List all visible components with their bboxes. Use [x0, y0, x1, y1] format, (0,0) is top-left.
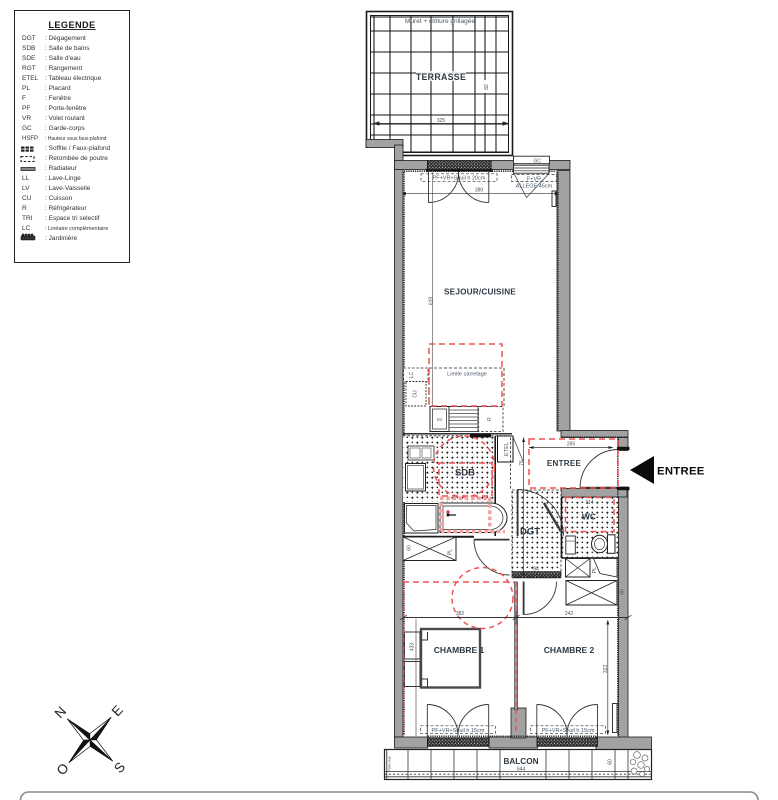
- svg-text:: Lave-Linge: : Lave-Linge: [45, 175, 81, 182]
- svg-text:SDB: SDB: [455, 468, 475, 479]
- svg-text:SDE: SDE: [22, 55, 36, 62]
- svg-text:ENTREE: ENTREE: [547, 459, 582, 468]
- svg-text:PL: PL: [592, 567, 598, 573]
- svg-text:DGT: DGT: [22, 35, 36, 42]
- svg-text:DGT: DGT: [520, 527, 540, 538]
- svg-text:Limite carrelage: Limite carrelage: [447, 372, 487, 378]
- svg-text:CU: CU: [22, 195, 32, 202]
- svg-text:: Fenêtre: : Fenêtre: [45, 95, 71, 102]
- svg-text:: Garde-corps: : Garde-corps: [45, 125, 85, 132]
- svg-text:: Jardinière: : Jardinière: [45, 235, 78, 242]
- svg-text:CHAMBRE 1: CHAMBRE 1: [434, 645, 485, 655]
- svg-text:S1: S1: [437, 417, 443, 422]
- svg-text:: Rangement: : Rangement: [45, 65, 82, 72]
- svg-text:HSFP: HSFP: [22, 136, 38, 142]
- svg-text:: Tableau électrique: : Tableau électrique: [45, 75, 102, 82]
- svg-text:: Dégagement: : Dégagement: [45, 35, 86, 42]
- svg-text:76: 76: [519, 460, 525, 466]
- svg-text:94: 94: [533, 566, 539, 572]
- svg-text:: Lave-Vaisselle: : Lave-Vaisselle: [45, 185, 91, 192]
- svg-text:: Placard: : Placard: [45, 85, 71, 92]
- svg-text:: Hauteur sous faux-plafond: : Hauteur sous faux-plafond: [45, 136, 107, 142]
- svg-text:Muret + clôture grillagée: Muret + clôture grillagée: [405, 18, 475, 25]
- svg-text:LEGENDE: LEGENDE: [48, 20, 95, 30]
- svg-text:82: 82: [484, 84, 490, 90]
- svg-text:TERRASSE: TERRASSE: [416, 72, 466, 82]
- svg-text:PL: PL: [448, 549, 454, 555]
- svg-text:: Linéaire complémentaire: : Linéaire complémentaire: [45, 226, 108, 232]
- svg-text:ALLEGE 45cm: ALLEGE 45cm: [516, 183, 553, 189]
- svg-text:PF+VR+Seuil h 15cm: PF+VR+Seuil h 15cm: [432, 728, 485, 734]
- svg-text:60: 60: [407, 545, 413, 551]
- svg-text:PF+VR+Seuil h 15cm: PF+VR+Seuil h 15cm: [542, 728, 595, 734]
- svg-text:WC: WC: [582, 512, 596, 522]
- svg-text:LC: LC: [22, 225, 31, 232]
- svg-text:CHAMBRE 2: CHAMBRE 2: [544, 645, 595, 655]
- svg-text:LV: LV: [22, 185, 30, 192]
- svg-text:LC: LC: [409, 371, 415, 378]
- svg-text:323: 323: [603, 665, 609, 674]
- svg-text:: Radiateur: : Radiateur: [45, 165, 78, 172]
- svg-text:CU: CU: [413, 390, 419, 398]
- svg-text:PF: PF: [22, 105, 30, 112]
- svg-text:: Volet roulant: : Volet roulant: [45, 115, 85, 122]
- svg-text:: Espace tri selectif: : Espace tri selectif: [45, 215, 100, 222]
- svg-text:: Soffite / Faux-plafond: : Soffite / Faux-plafond: [45, 145, 111, 152]
- svg-text:SEJOUR/CUISINE: SEJOUR/CUISINE: [444, 288, 516, 297]
- svg-text:R: R: [487, 417, 493, 421]
- svg-text:VR: VR: [22, 115, 31, 122]
- svg-text:ETEL: ETEL: [22, 75, 39, 82]
- svg-text:619: 619: [429, 297, 435, 306]
- svg-text:: Réfrigérateur: : Réfrigérateur: [45, 205, 87, 212]
- svg-text:644: 644: [517, 767, 526, 773]
- svg-text:LL: LL: [22, 175, 30, 182]
- svg-text:60: 60: [620, 589, 626, 595]
- svg-text:: Porte-fenêtre: : Porte-fenêtre: [45, 105, 87, 112]
- svg-text:: Salle d'eau: : Salle d'eau: [45, 55, 81, 62]
- svg-text:RGT: RGT: [22, 65, 36, 72]
- svg-text:: Cuisson: : Cuisson: [45, 195, 72, 202]
- svg-text:: Salle de bains: : Salle de bains: [45, 45, 90, 52]
- svg-text:GC: GC: [22, 125, 32, 132]
- svg-text:GC: GC: [534, 159, 542, 165]
- svg-text:60: 60: [608, 759, 614, 765]
- svg-text:ENTREE: ENTREE: [657, 466, 705, 478]
- svg-text:F+VR: F+VR: [527, 176, 541, 182]
- svg-text:380: 380: [475, 188, 484, 194]
- svg-text:PL: PL: [22, 85, 30, 92]
- svg-text:382: 382: [456, 611, 465, 617]
- svg-text:: Retombée de poutre: : Retombée de poutre: [45, 155, 108, 162]
- svg-text:114: 114: [586, 500, 594, 506]
- svg-text:ETEL: ETEL: [504, 442, 510, 456]
- svg-text:Pare-vue: Pare-vue: [388, 756, 392, 771]
- svg-text:F: F: [22, 95, 26, 102]
- svg-text:265: 265: [567, 442, 576, 448]
- svg-text:BALCON: BALCON: [503, 757, 538, 766]
- svg-text:TRI: TRI: [22, 215, 33, 222]
- svg-text:R: R: [22, 205, 27, 212]
- svg-text:433: 433: [410, 643, 416, 652]
- svg-text:242: 242: [565, 611, 574, 617]
- svg-text:SDB: SDB: [22, 45, 35, 52]
